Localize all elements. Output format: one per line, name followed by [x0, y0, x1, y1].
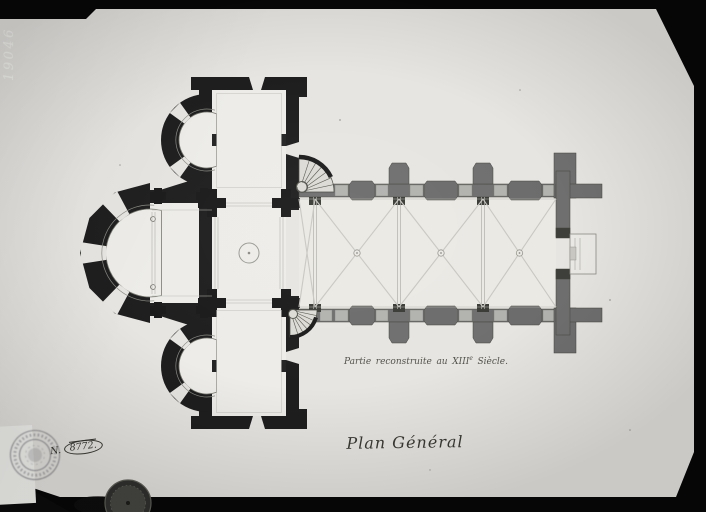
main-apse — [80, 183, 161, 323]
portal-jamb — [556, 228, 570, 238]
spiral-staircase-north — [297, 157, 335, 193]
church-floor-plan — [0, 0, 706, 512]
nave-buttress — [389, 163, 409, 184]
nave-buttress — [473, 322, 493, 343]
west-portal-steps — [570, 234, 596, 274]
metal-disc — [74, 480, 151, 512]
photo-plate: 19046 N. 8772. Partie reconstruite au XI… — [0, 0, 706, 512]
nave-buttress — [389, 322, 409, 343]
portal-jamb — [556, 269, 570, 279]
nave-buttress — [473, 163, 493, 184]
spiral-staircase-south — [289, 310, 318, 338]
